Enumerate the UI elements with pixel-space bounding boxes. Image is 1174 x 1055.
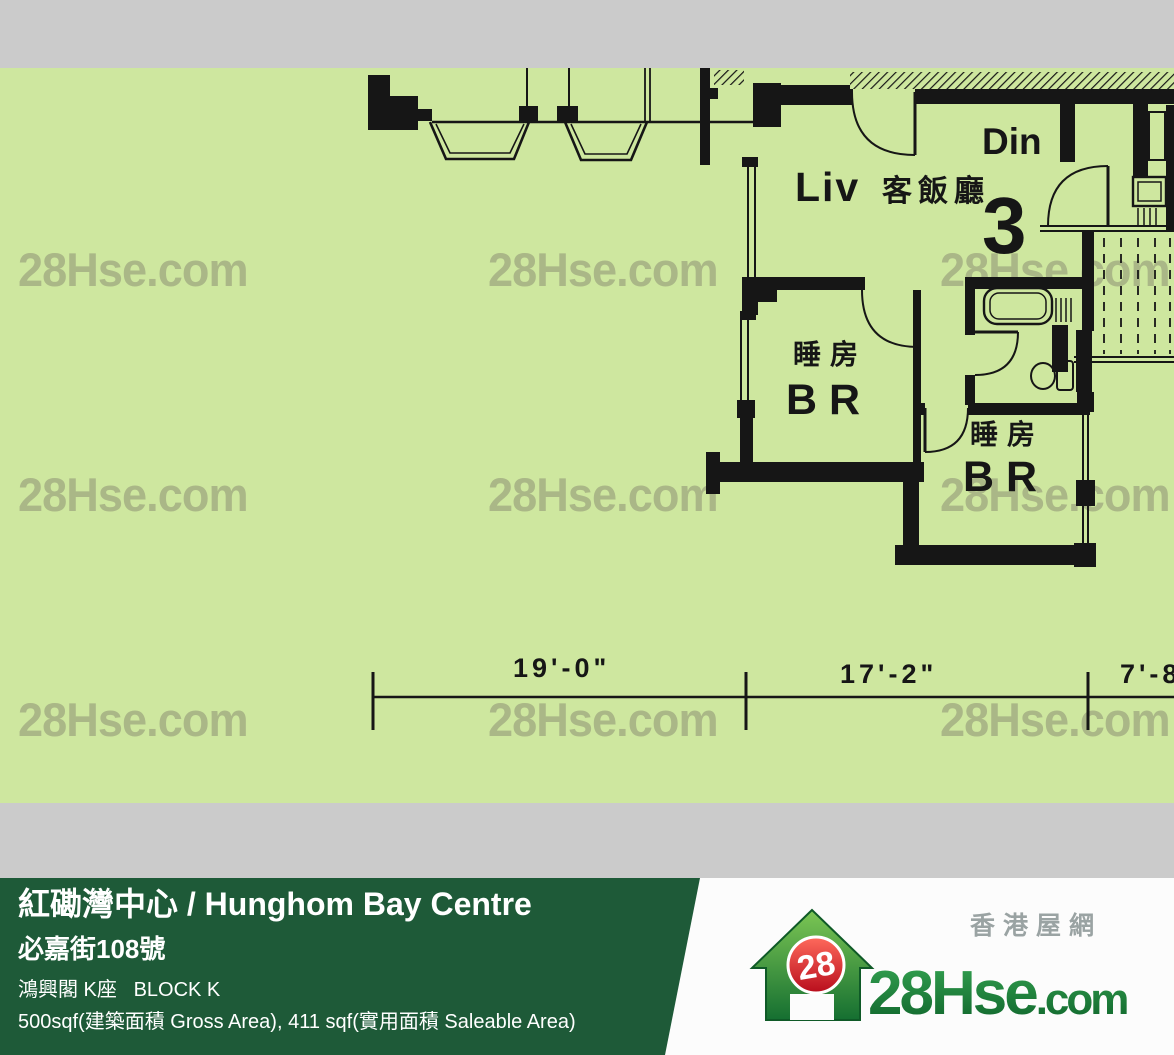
dimension-label-2: 17'-2" (840, 659, 937, 690)
logo-tagline: 香港屋網 (970, 911, 1102, 940)
room-label-living-cn: 客飯廳 (882, 177, 990, 207)
unit-number-label: 3 (982, 186, 1027, 266)
dimension-label-3: 7'-8 (1120, 659, 1174, 690)
kitchen-floor-hatch (1104, 238, 1170, 354)
room-label-bedroom2-en: BR (963, 456, 1049, 499)
estate-area: 500sqf(建築面積 Gross Area), 411 sqf(實用面積 Sa… (18, 1012, 576, 1032)
estate-block: 鴻興閣 K座 BLOCK K (18, 980, 220, 1000)
room-label-living-en: Liv (795, 167, 860, 208)
room-label-bedroom1-en: BR (786, 379, 872, 422)
bathroom-floor-hatch (1056, 298, 1071, 322)
room-label-bedroom2-cn: 睡房 (970, 421, 1044, 449)
floorplan-image: 28Hse.com 28Hse.com 28Hse.com 28Hse.com … (0, 0, 1174, 1055)
estate-address: 必嘉街108號 (18, 936, 165, 962)
dimension-line (373, 672, 1174, 730)
room-label-dining: Din (982, 123, 1042, 160)
bathtub (984, 288, 1052, 324)
logo-panel: 28 28Hse.com 香港屋網 (640, 878, 1174, 1055)
logo-wordmark: 28Hse.com (868, 959, 1127, 1028)
logo-graphic: 28 28Hse.com 香港屋網 (640, 878, 1174, 1055)
room-label-bedroom1-cn: 睡房 (793, 341, 867, 369)
dimension-label-1: 19'-0" (513, 653, 610, 684)
estate-title: 紅磡灣中心 / Hunghom Bay Centre (18, 888, 532, 920)
badge-28: 28 (788, 937, 844, 993)
svg-text:28: 28 (794, 944, 838, 988)
walls (368, 68, 1174, 567)
